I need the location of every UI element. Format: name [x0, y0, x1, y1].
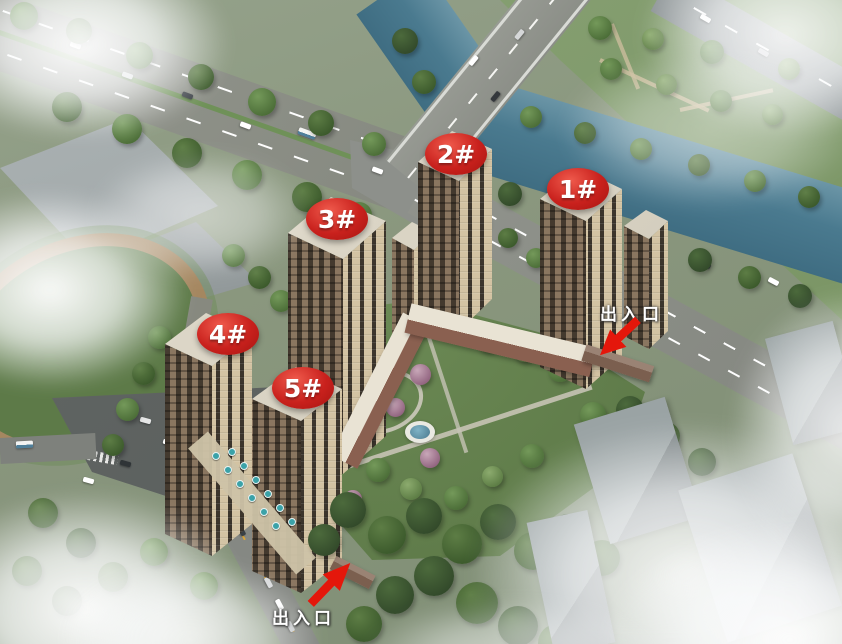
tree	[688, 248, 712, 272]
building-label-2-text: 2#	[437, 140, 475, 169]
tree	[498, 182, 522, 206]
tree	[366, 458, 390, 482]
building-label-5: 5#	[272, 367, 334, 409]
building-label-4-text: 4#	[209, 320, 247, 349]
aerial-rendering: 1# 2# 3# 4# 5# 出入口 出入口	[0, 0, 842, 644]
tree	[116, 398, 139, 421]
umbrella	[288, 518, 296, 526]
tree	[498, 228, 518, 248]
umbrella	[224, 466, 232, 474]
pink-tree	[420, 448, 440, 468]
building-label-1: 1#	[547, 168, 609, 210]
building-label-3: 3#	[306, 198, 368, 240]
tree	[248, 88, 276, 116]
building-label-3-text: 3#	[318, 205, 356, 234]
side-road	[0, 433, 97, 464]
tree	[376, 576, 414, 614]
tree	[588, 16, 612, 40]
tree	[738, 266, 761, 289]
tree	[308, 524, 340, 556]
tree	[412, 70, 436, 94]
car	[767, 277, 779, 287]
fountain-water	[410, 425, 430, 439]
building-label-1-text: 1#	[559, 175, 597, 204]
umbrella	[212, 452, 220, 460]
tree	[520, 106, 542, 128]
tree	[330, 492, 366, 528]
umbrella	[264, 490, 272, 498]
building-label-5-text: 5#	[284, 374, 322, 403]
umbrella	[276, 504, 284, 512]
building-label-4: 4#	[197, 313, 259, 355]
umbrella	[252, 476, 260, 484]
tree	[308, 110, 334, 136]
tree	[482, 466, 503, 487]
umbrella	[272, 522, 280, 530]
umbrella	[240, 462, 248, 470]
umbrella	[248, 494, 256, 502]
tree	[362, 132, 386, 156]
tree	[414, 556, 454, 596]
bus	[16, 441, 33, 449]
tree	[406, 498, 442, 534]
tree	[400, 478, 422, 500]
tree	[102, 434, 124, 456]
building-label-2: 2#	[425, 133, 487, 175]
car	[83, 477, 95, 485]
tree	[392, 28, 418, 54]
umbrella	[228, 448, 236, 456]
umbrella	[260, 508, 268, 516]
umbrella	[236, 480, 244, 488]
entrance-label-south: 出入口	[272, 604, 335, 629]
tree	[368, 516, 406, 554]
tree	[444, 486, 468, 510]
cloud	[90, 150, 310, 280]
pink-tree	[410, 364, 431, 385]
